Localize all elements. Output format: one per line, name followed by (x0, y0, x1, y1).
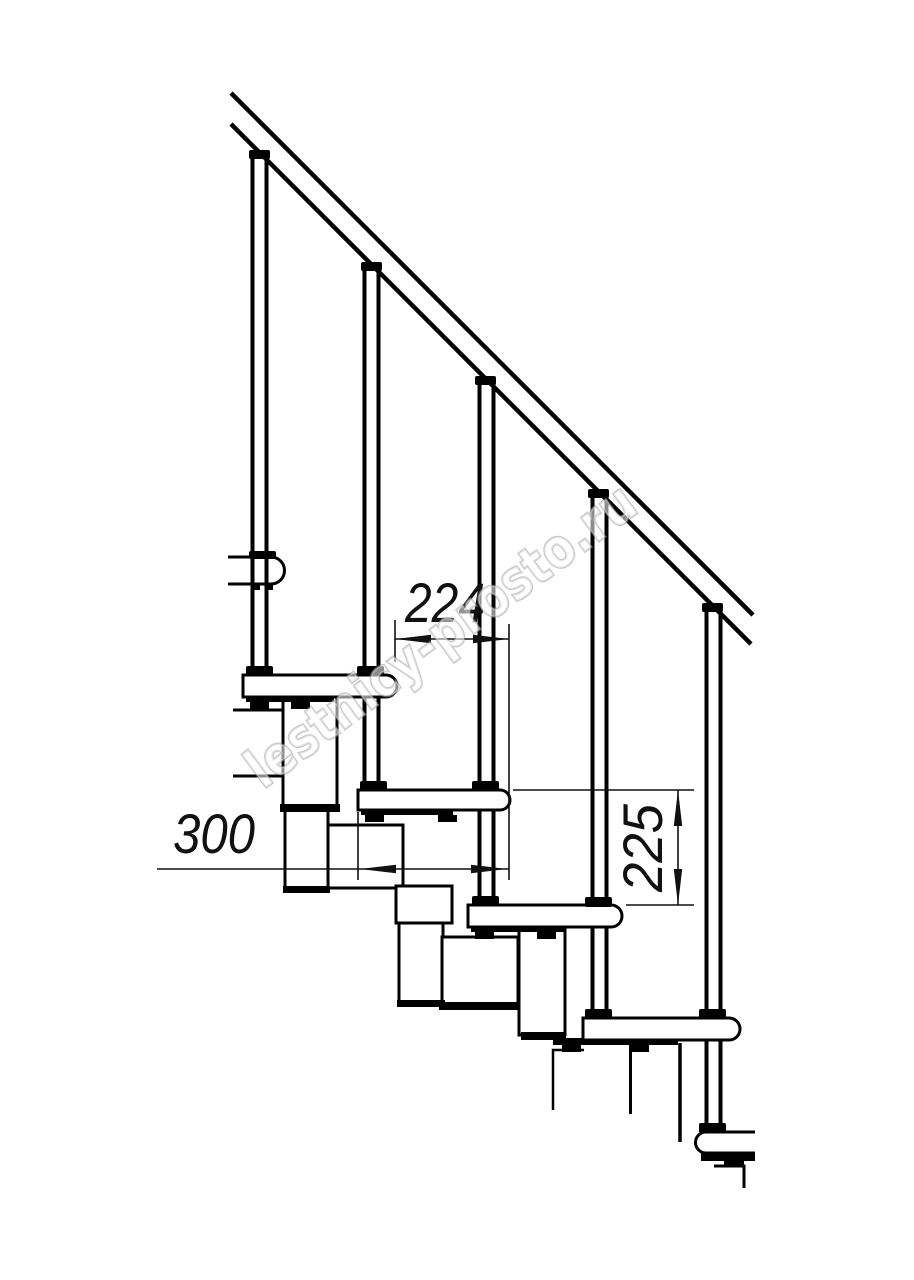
tread-4 (553, 1018, 740, 1052)
dim300-label: 300 (173, 802, 255, 865)
rail-cap-3 (475, 376, 496, 385)
rail-cap-2 (361, 262, 382, 271)
collar-b2-t2 (360, 781, 387, 791)
rail-cap-5 (702, 603, 723, 612)
tread-2 (358, 790, 510, 822)
dim300-arrow-right (471, 865, 507, 873)
spine-tube-2-narrow (399, 923, 443, 1005)
collar-b5-bottom (699, 1123, 726, 1133)
spine-tube-3 (519, 930, 565, 1035)
spine-tube-2-wide (396, 886, 452, 923)
stair-drawing-page: 224 300 225 lestnicy-prosto.ru (0, 0, 914, 1280)
rail-cap-1 (249, 150, 270, 159)
continuation-lines (553, 1042, 680, 1142)
dim225-arrow-up (674, 790, 682, 826)
baluster-5 (707, 606, 721, 1132)
spine-module-3-box (442, 937, 518, 1005)
collar-b4-t4 (585, 1009, 612, 1019)
baluster-1 (253, 153, 267, 675)
collar-b4-t3 (585, 897, 612, 907)
collar-b1-t1 (246, 666, 273, 676)
baluster-4 (593, 492, 607, 1018)
modular-stair-side-view: 224 300 225 lestnicy-prosto.ru (0, 0, 914, 1280)
collar-b5-t4 (699, 1009, 726, 1019)
watermark-text: lestnicy-prosto.ru (233, 470, 648, 800)
collar-b3-t2 (472, 781, 499, 791)
tread-3 (468, 905, 622, 939)
landing-edge-tread (228, 557, 285, 584)
collar-landing (249, 551, 276, 559)
collar-b3-t3 (472, 896, 499, 906)
spine-tube-1-narrow (285, 809, 328, 891)
dim225-label: 225 (611, 803, 674, 893)
dim225-arrow-down (674, 869, 682, 905)
bottom-step-cut-line (714, 1166, 744, 1188)
bottom-tread-fragment (696, 1132, 756, 1188)
spine-module-2-box (328, 825, 403, 888)
dimension-225: 225 (513, 790, 694, 905)
